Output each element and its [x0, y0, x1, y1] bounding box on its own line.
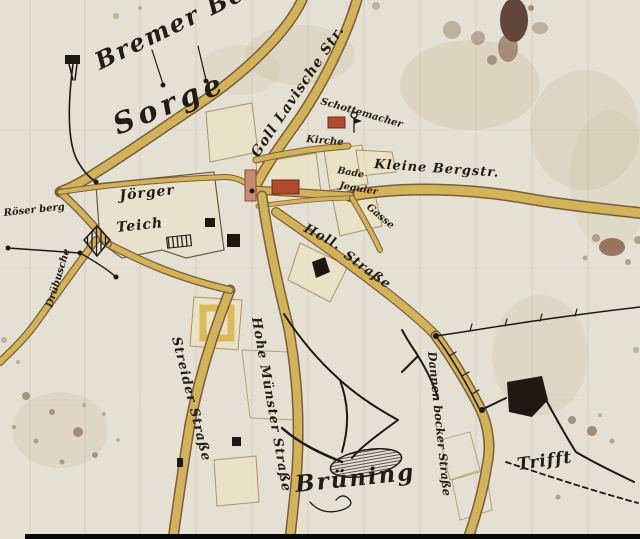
map-page: Bremer Berge Sorge Goll Lavische Str. Sc… — [0, 0, 640, 539]
red-building-kirche — [328, 117, 345, 128]
red-building-large — [272, 180, 299, 194]
black-building-5 — [177, 458, 183, 467]
historical-town-map: Bremer Berge Sorge Goll Lavische Str. Sc… — [0, 0, 640, 539]
black-building-2 — [227, 234, 240, 247]
pink-building — [245, 170, 256, 201]
black-building-4 — [232, 437, 241, 446]
black-building-1 — [205, 218, 215, 227]
hatched-building — [167, 235, 192, 248]
photo-edge-bottom — [25, 534, 640, 539]
